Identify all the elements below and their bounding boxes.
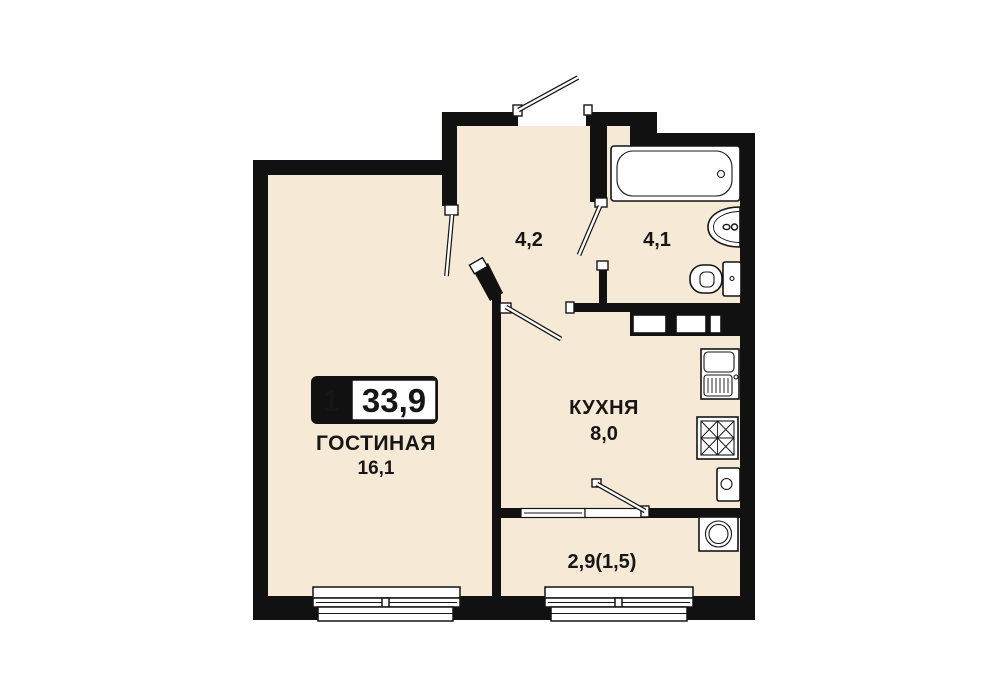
bathroom-area: 4,1 [643,229,671,251]
wall-balcony-left [501,508,522,518]
stove [697,417,738,459]
wall-hallway-left [442,112,457,206]
badge-total-area: 33,9 [362,382,426,419]
wall-hallway-bathroom [590,126,607,202]
bathtub [611,146,740,201]
vent-shaft-cell [633,315,666,333]
floor-plan-page: 1 33,9 ГОСТИНАЯ 16,1 КУХНЯ 8,0 4,2 4,1 2… [0,0,1006,700]
kitchen-area: 8,0 [590,423,618,445]
water-heater [717,468,740,501]
vent-shaft [630,312,740,336]
entrance-opening [518,112,586,126]
vent-shaft-cell [676,315,706,333]
balcony-door [521,509,647,518]
balcony-area: 2,9(1,5) [568,551,637,573]
badge-room-count: 1 [323,385,340,418]
living-room-label: ГОСТИНАЯ [316,432,436,455]
living-room-area: 16,1 [358,458,395,479]
apartment-badge: 1 33,9 [311,376,438,424]
wall-left-exterior [253,160,268,620]
kitchen-label: КУХНЯ [569,397,639,419]
vent-shaft-cell [710,315,721,333]
window-living-room [313,587,460,621]
window-balcony [545,587,693,621]
wall-bathroom-top [630,133,755,147]
wall-bathroom-bottom [568,303,755,312]
washing-machine [699,517,738,551]
wall-living-top [253,160,457,175]
wall-living-kitchen-divider [492,292,501,596]
kitchen-sink [701,349,739,399]
hallway-area: 4,2 [515,229,543,251]
floor-plan: 1 33,9 ГОСТИНАЯ 16,1 КУХНЯ 8,0 4,2 4,1 2… [0,0,1006,700]
wall-hallway-top-left [442,112,518,126]
wall-right-exterior [740,133,755,620]
toilet [690,262,741,296]
